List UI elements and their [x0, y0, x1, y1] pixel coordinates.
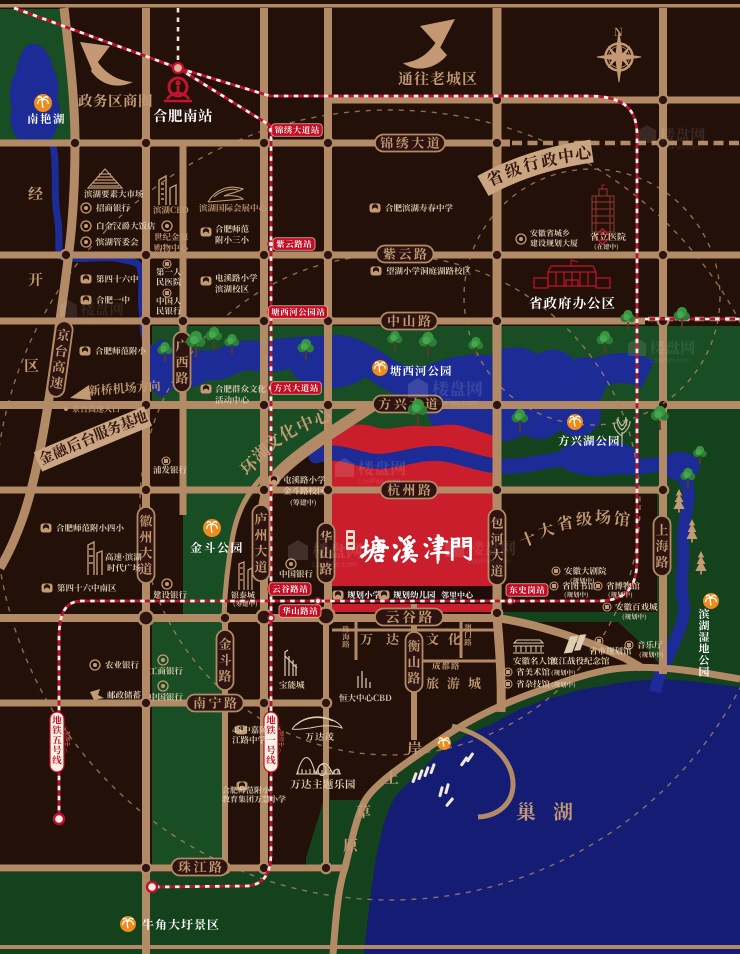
svg-text:LouPan.com: LouPan.com [432, 398, 477, 407]
svg-text:LouPan.com: LouPan.com [80, 318, 119, 325]
svg-text:LouPan.com: LouPan.com [468, 557, 511, 566]
svg-text:LouPan.com: LouPan.com [312, 560, 357, 569]
svg-text:LouPan.com: LouPan.com [650, 355, 690, 364]
svg-text:LouPan.com: LouPan.com [358, 477, 401, 486]
svg-text:LouPan.com: LouPan.com [660, 142, 700, 151]
